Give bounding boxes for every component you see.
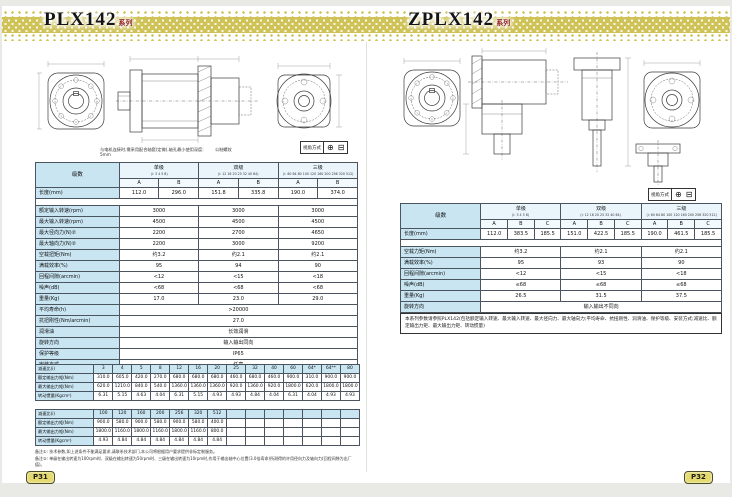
rear-view-drawing xyxy=(644,60,700,128)
spec-value: <15 xyxy=(199,272,278,283)
inertia-value: 4.84 xyxy=(246,392,265,401)
spec-row-label: 最大径向力(N)② xyxy=(36,228,120,239)
max-torque-value: 1160.0 xyxy=(113,428,132,437)
max-torque-value: 620.0 xyxy=(302,383,321,392)
inertia-value: 4.93 xyxy=(321,392,340,401)
spec-value: 31.5 xyxy=(561,291,641,302)
rated-torque-value: 680.0 xyxy=(170,374,189,383)
spec-value: <68 xyxy=(199,283,278,294)
spec-row-label: 重量(Kg) xyxy=(36,294,120,305)
rated-torque-value: 420.0 xyxy=(132,374,151,383)
dimension-column-header-3-A: A xyxy=(641,220,668,229)
length-value: 461.5 xyxy=(668,229,695,240)
rated-torque-value: 580.0 xyxy=(151,419,170,428)
stage-group-header-1: 单级(i: 3 4 5 8) xyxy=(481,204,561,220)
length-value: 374.0 xyxy=(318,188,358,199)
spec-value: 约2.1 xyxy=(199,250,278,261)
front-view-drawing xyxy=(404,58,460,126)
ratio-header-value: 3 xyxy=(94,365,113,374)
max-torque-value xyxy=(246,428,265,437)
spec-row-label: 噪声(dB) xyxy=(401,280,481,291)
spec-value: 3000 xyxy=(278,206,357,217)
spec-value: 4500 xyxy=(278,217,357,228)
length-value: 335.8 xyxy=(238,188,278,199)
view-angle-label: 视角方式 xyxy=(301,142,324,153)
inertia-value: 4.84 xyxy=(151,437,170,446)
inertia-value xyxy=(302,437,321,446)
rated-torque-value xyxy=(265,419,284,428)
spec-row-label: 满载效率(%) xyxy=(36,261,120,272)
max-torque-value: 1360.0 xyxy=(189,383,208,392)
spec-value: <68 xyxy=(278,283,357,294)
inertia-value xyxy=(340,437,359,446)
rated-torque-value: 900.0 xyxy=(170,419,189,428)
inertia-value: 4.04 xyxy=(151,392,170,401)
spec-value-full: IP65 xyxy=(119,349,357,360)
spec-value: 90 xyxy=(278,261,357,272)
spec-value: 90 xyxy=(641,258,721,269)
dimension-column-header-1-C: C xyxy=(534,220,561,229)
ratio-header-value xyxy=(321,410,340,419)
spec-value-full: 输入输出同向 xyxy=(119,338,357,349)
ratio-header-value: 100 xyxy=(94,410,113,419)
spec-row-label: 额定输入转速(rpm) xyxy=(36,206,120,217)
left-footnote-1: 备注①: 技术参数,如上述条件不能满足要求,请联系技术部门,本公司将根据用户要求… xyxy=(35,449,357,455)
right-series-note: 本系列参数请参照PLX142(包括额定输入转速、最大输入转速、最大径向力、最大轴… xyxy=(400,313,722,334)
max-torque-value: 1800.0 xyxy=(132,428,151,437)
rated-torque-value xyxy=(227,419,246,428)
left-drawing-label: 公制螺纹 xyxy=(215,147,232,152)
rated-torque-value: 310.0 xyxy=(302,374,321,383)
max-torque-value: 1800.0 xyxy=(340,383,359,392)
ratio-header-value xyxy=(340,410,359,419)
ratio-header-value: 320 xyxy=(189,410,208,419)
rated-torque-value: 310.0 xyxy=(94,374,113,383)
inertia-value: 4.93 xyxy=(208,392,227,401)
max-torque-value: 1210.0 xyxy=(113,383,132,392)
ratio-header-value: 20 xyxy=(208,365,227,374)
right-technical-drawings xyxy=(396,48,716,198)
ratio-header-value: 8 xyxy=(151,365,170,374)
right-title-text: ZPLX142 xyxy=(408,9,494,30)
dimension-column-header-1-A: A xyxy=(119,179,159,188)
left-page-title: PLX142系列 xyxy=(44,9,133,31)
max-torque-value xyxy=(227,428,246,437)
stage-group-header-2: 双级(i: 12 16 20 25 32 40 64) xyxy=(199,163,278,179)
spec-corner-label: 级数 xyxy=(36,163,120,188)
length-value: 296.0 xyxy=(159,188,199,199)
inertia-value: 4.04 xyxy=(265,392,284,401)
spec-value: 9200 xyxy=(278,239,357,250)
rated-torque-value: 680.0 xyxy=(189,374,208,383)
left-footnote-2: 备注②: 单级在输出转速为100rpm时、双级在输出转速为50rpm时、三级在输… xyxy=(35,456,357,468)
length-value: 151.0 xyxy=(561,229,588,240)
left-drawings-svg xyxy=(36,54,354,144)
dimension-column-header-3-B: B xyxy=(318,179,358,188)
ratio-header-value: 160 xyxy=(132,410,151,419)
length-row-label: 长度(mm) xyxy=(36,188,120,199)
ratio-header-value: 120 xyxy=(113,410,132,419)
ratio-header-label: 减速比(i) xyxy=(36,365,94,374)
length-value: 151.8 xyxy=(199,188,239,199)
max-torque-value xyxy=(265,428,284,437)
inertia-value: 6.31 xyxy=(284,392,303,401)
spec-value: 约3.2 xyxy=(119,250,198,261)
inertia-value: 4.63 xyxy=(132,392,151,401)
ratio-header-value xyxy=(227,410,246,419)
rated-torque-label: 额定输出力矩(Nm) xyxy=(36,419,94,428)
spec-corner-label: 级数 xyxy=(401,204,481,229)
inertia-value: 5.15 xyxy=(113,392,132,401)
inertia-value: 4.84 xyxy=(170,437,189,446)
rear-view-drawing xyxy=(277,63,342,128)
dimension-column-header-2-A: A xyxy=(199,179,239,188)
spec-value: 93 xyxy=(561,258,641,269)
spec-value: 3000 xyxy=(199,206,278,217)
left-view-angle-box: 视角方式 ⊕ ⊟ xyxy=(300,141,348,154)
spec-value: <12 xyxy=(119,272,198,283)
ratio-header-value: 256 xyxy=(170,410,189,419)
spec-value: <68 xyxy=(119,283,198,294)
ratio-header-label: 减速比(i) xyxy=(36,410,94,419)
max-torque-value xyxy=(340,428,359,437)
max-torque-value: 1800.0 xyxy=(284,383,303,392)
spec-value: 29.0 xyxy=(278,294,357,305)
spec-row-label: 空载力矩(Nm) xyxy=(401,247,481,258)
ratio-header-value xyxy=(302,410,321,419)
ratio-header-value: 64** xyxy=(321,365,340,374)
page-number-right: P32 xyxy=(684,471,713,484)
dimension-column-header-2-C: C xyxy=(614,220,641,229)
ratio-header-value xyxy=(265,410,284,419)
inertia-value xyxy=(321,437,340,446)
side-view-drawing xyxy=(116,56,258,143)
rated-torque-value xyxy=(340,419,359,428)
length-value: 112.0 xyxy=(481,229,508,240)
dimension-column-header-2-B: B xyxy=(588,220,615,229)
rated-torque-value: 270.0 xyxy=(151,374,170,383)
dimension-column-header-3-C: C xyxy=(695,220,722,229)
spec-value: 37.5 xyxy=(641,291,721,302)
left-technical-drawings xyxy=(36,54,354,144)
stage-group-header-2: 双级(i: 12 16 20 25 32 40 64) xyxy=(561,204,641,220)
inertia-label: 转动惯量(Kgcm²) xyxy=(36,437,94,446)
left-ratio-table-1: 减速比(i)34581216202532406064*64**80额定输出力矩(… xyxy=(35,364,360,401)
ratio-header-value: 5 xyxy=(132,365,151,374)
rated-torque-value xyxy=(246,419,265,428)
dimension-column-header-3-A: A xyxy=(278,179,318,188)
length-value: 185.5 xyxy=(534,229,561,240)
right-spec-table: 级数单级(i: 3 4 5 8)双级(i: 12 16 20 25 32 40 … xyxy=(400,203,722,313)
shaft-detail-drawing xyxy=(636,140,680,186)
inertia-value xyxy=(265,437,284,446)
ratio-header-value: 4 xyxy=(113,365,132,374)
spec-value: 26.5 xyxy=(481,291,561,302)
rated-torque-value xyxy=(302,419,321,428)
left-title-suffix: 系列 xyxy=(119,19,133,27)
spec-value-full: 27.0 xyxy=(119,316,357,327)
spec-value: 4500 xyxy=(199,217,278,228)
ratio-header-value: 25 xyxy=(227,365,246,374)
max-torque-value: 800.0 xyxy=(208,428,227,437)
spec-value: 4500 xyxy=(119,217,198,228)
max-torque-value: 1160.0 xyxy=(189,428,208,437)
spec-row-label: 重量(Kg) xyxy=(401,291,481,302)
page-number-left: P31 xyxy=(26,471,55,484)
inertia-value xyxy=(227,437,246,446)
inertia-value: 6.31 xyxy=(170,392,189,401)
inertia-value: 4.84 xyxy=(132,437,151,446)
ratio-header-value: 80 xyxy=(340,365,359,374)
inertia-value: 4.04 xyxy=(302,392,321,401)
spacer-row xyxy=(36,199,358,206)
inertia-value: 4.93 xyxy=(94,437,113,446)
rated-torque-value: 580.0 xyxy=(113,419,132,428)
rated-torque-value: 900.0 xyxy=(340,374,359,383)
left-drawing-note: 与电机连接时,需采用配合轴套(定做),轴孔最小使用深度: 5mm xyxy=(100,147,210,157)
rated-torque-value: 900.0 xyxy=(284,374,303,383)
spec-value: <18 xyxy=(641,269,721,280)
spec-row-label: 润滑油 xyxy=(36,327,120,338)
catalog-spread: PLX142系列 ZPLX142系列 xyxy=(0,0,732,497)
max-torque-value xyxy=(321,428,340,437)
length-value: 185.5 xyxy=(614,229,641,240)
rated-torque-value: 400.0 xyxy=(208,419,227,428)
max-torque-label: 最大输出力矩(Nm) xyxy=(36,428,94,437)
spec-value-full: 输入输出不同向 xyxy=(481,302,722,313)
right-page-title: ZPLX142系列 xyxy=(408,9,510,31)
max-torque-value: 620.0 xyxy=(94,383,113,392)
spec-row-label: 回程间隙(arcmin) xyxy=(401,269,481,280)
ratio-header-value: 40 xyxy=(265,365,284,374)
spec-value: 4650 xyxy=(278,228,357,239)
ratio-header-value: 64* xyxy=(302,365,321,374)
dimension-column-header-2-B: B xyxy=(238,179,278,188)
spec-row-label: 空载扭矩(Nm) xyxy=(36,250,120,261)
max-torque-value: 920.0 xyxy=(265,383,284,392)
inertia-label: 转动惯量(Kgcm²) xyxy=(36,392,94,401)
vertical-view-drawing xyxy=(574,52,631,172)
spec-value: 2700 xyxy=(199,228,278,239)
spec-value: <18 xyxy=(278,272,357,283)
rated-torque-value: 580.0 xyxy=(189,419,208,428)
ratio-header-value: 32 xyxy=(246,365,265,374)
right-view-angle-box: 视角方式 ⊕ ⊟ xyxy=(648,188,696,201)
left-spec-table: 级数单级(i: 3 4 5 8)双级(i: 12 16 20 25 32 40 … xyxy=(35,162,358,371)
spec-value: 95 xyxy=(119,261,198,272)
max-torque-value: 840.0 xyxy=(132,383,151,392)
spec-value: 95 xyxy=(481,258,561,269)
page-gutter xyxy=(366,42,367,472)
spec-value-full: 长效润滑 xyxy=(119,327,357,338)
max-torque-value: 1360.0 xyxy=(170,383,189,392)
spec-row-label: 回程间隙(arcmin) xyxy=(36,272,120,283)
length-value: 112.0 xyxy=(119,188,159,199)
spec-row-label: 最大轴向力(N)② xyxy=(36,239,120,250)
spec-row-label: 旋转方向 xyxy=(401,302,481,313)
left-title-text: PLX142 xyxy=(44,9,117,30)
rated-torque-value: 605.0 xyxy=(113,374,132,383)
max-torque-value: 1360.0 xyxy=(246,383,265,392)
spec-value: <15 xyxy=(561,269,641,280)
length-value: 422.5 xyxy=(588,229,615,240)
spec-value: ≤68 xyxy=(641,280,721,291)
front-view-drawing xyxy=(37,61,104,129)
dimension-column-header-1-A: A xyxy=(481,220,508,229)
spec-row-label: 满载效率(%) xyxy=(401,258,481,269)
rated-torque-value: 460.0 xyxy=(227,374,246,383)
max-torque-value: 1800.0 xyxy=(94,428,113,437)
rated-torque-value: 900.0 xyxy=(94,419,113,428)
rated-torque-value: 680.0 xyxy=(246,374,265,383)
max-torque-value: 1800.0 xyxy=(170,428,189,437)
right-title-suffix: 系列 xyxy=(496,19,510,27)
max-torque-value: 1160.0 xyxy=(151,428,170,437)
inertia-value: 4.84 xyxy=(113,437,132,446)
dimension-column-header-2-A: A xyxy=(561,220,588,229)
rated-torque-value: 900.0 xyxy=(132,419,151,428)
rated-torque-value xyxy=(284,419,303,428)
right-drawings-svg xyxy=(396,48,716,198)
spec-row-label: 旋转方向 xyxy=(36,338,120,349)
inertia-value xyxy=(284,437,303,446)
spec-value: ≤68 xyxy=(561,280,641,291)
spec-value: 3000 xyxy=(199,239,278,250)
first-angle-projection-icon: ⊕ xyxy=(675,190,682,199)
max-torque-value: 920.0 xyxy=(227,383,246,392)
ratio-header-value: 60 xyxy=(284,365,303,374)
rated-torque-label: 额定输出力矩(Nm) xyxy=(36,374,94,383)
spec-row-label: 抗扭刚性(Nm/arcmin) xyxy=(36,316,120,327)
spec-value: 约2.1 xyxy=(641,247,721,258)
max-torque-value: 540.0 xyxy=(151,383,170,392)
ratio-header-value: 16 xyxy=(189,365,208,374)
length-value: 190.0 xyxy=(641,229,668,240)
spec-value: 约3.2 xyxy=(481,247,561,258)
spec-value: <12 xyxy=(481,269,561,280)
spec-value: 约2.1 xyxy=(561,247,641,258)
spec-value: 约2.1 xyxy=(278,250,357,261)
spec-value: 23.0 xyxy=(199,294,278,305)
spec-value-full: >20000 xyxy=(119,305,357,316)
stage-group-header-3: 三级(i: 60 64 80 100 120 160 200 256 320 5… xyxy=(641,204,721,220)
length-value: 383.5 xyxy=(508,229,535,240)
rated-torque-value xyxy=(321,419,340,428)
stage-group-header-3: 三级(i: 60 64 80 100 120 160 200 256 320 5… xyxy=(278,163,357,179)
max-torque-value: 1360.0 xyxy=(208,383,227,392)
left-ratio-table-2: 减速比(i)100120160200256320512额定输出力矩(Nm)900… xyxy=(35,409,360,446)
view-angle-label: 视角方式 xyxy=(649,189,672,200)
spec-row-label: 平均寿命(h) xyxy=(36,305,120,316)
dimension-column-header-1-B: B xyxy=(508,220,535,229)
spec-row-label: 噪声(dB) xyxy=(36,283,120,294)
spec-value: 2200 xyxy=(119,228,198,239)
inertia-value xyxy=(246,437,265,446)
banner-dots-bottom xyxy=(2,33,730,41)
rated-torque-value: 680.0 xyxy=(208,374,227,383)
ratio-header-value: 12 xyxy=(170,365,189,374)
inertia-value: 4.84 xyxy=(189,437,208,446)
right-angle-view-drawing xyxy=(463,48,568,160)
ratio-header-value xyxy=(246,410,265,419)
ratio-header-value xyxy=(284,410,303,419)
spec-row-label: 最大输入转速(rpm) xyxy=(36,217,120,228)
inertia-value: 4.93 xyxy=(340,392,359,401)
ratio-header-value: 200 xyxy=(151,410,170,419)
inertia-value: 4.84 xyxy=(208,437,227,446)
rated-torque-value: 900.0 xyxy=(321,374,340,383)
inertia-value: 4.93 xyxy=(227,392,246,401)
spec-value: 3000 xyxy=(119,206,198,217)
spec-row-label: 保护等级 xyxy=(36,349,120,360)
third-angle-projection-icon: ⊟ xyxy=(338,143,345,152)
spec-value: 2200 xyxy=(119,239,198,250)
spacer-row xyxy=(401,240,722,247)
inertia-value: 6.31 xyxy=(94,392,113,401)
max-torque-value xyxy=(302,428,321,437)
dimension-column-header-1-B: B xyxy=(159,179,199,188)
ratio-header-value: 512 xyxy=(208,410,227,419)
length-value: 185.5 xyxy=(695,229,722,240)
first-angle-projection-icon: ⊕ xyxy=(327,143,334,152)
third-angle-projection-icon: ⊟ xyxy=(686,190,693,199)
spec-value: 94 xyxy=(199,261,278,272)
rated-torque-value: 460.0 xyxy=(265,374,284,383)
length-value: 190.0 xyxy=(278,188,318,199)
length-row-label: 长度(mm) xyxy=(401,229,481,240)
max-torque-label: 最大输出力矩(Nm) xyxy=(36,383,94,392)
max-torque-value xyxy=(284,428,303,437)
stage-group-header-1: 单级(i: 3 4 5 8) xyxy=(119,163,198,179)
inertia-value: 5.15 xyxy=(189,392,208,401)
dimension-column-header-3-B: B xyxy=(668,220,695,229)
max-torque-value: 1800.0 xyxy=(321,383,340,392)
spec-value: 17.0 xyxy=(119,294,198,305)
spec-value: ≤68 xyxy=(481,280,561,291)
